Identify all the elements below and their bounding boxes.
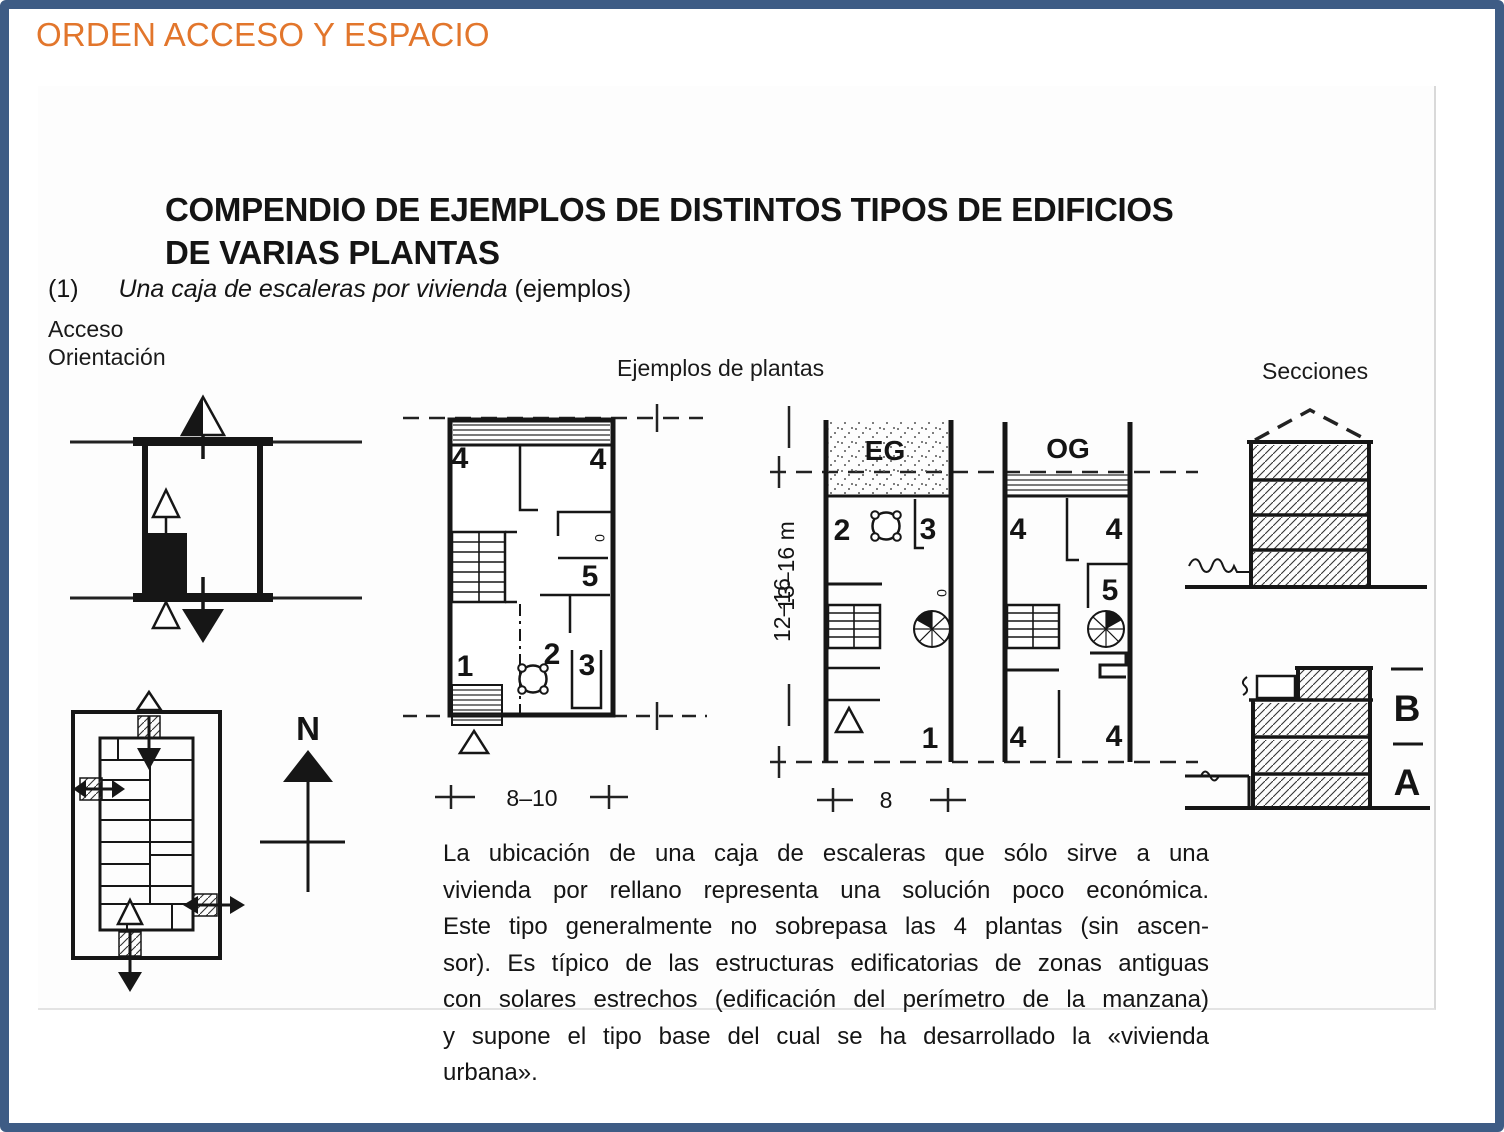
stair-core-block (145, 533, 187, 597)
explanatory-paragraph: La ubicación de una caja de escaleras qu… (443, 836, 1209, 1092)
label-orientacion: Orientación (48, 344, 166, 371)
paragraph-line: La ubicación de una caja de escaleras qu… (443, 836, 1209, 873)
staircase (1007, 605, 1059, 648)
eg-room-1: 1 (922, 722, 939, 755)
room-3: 3 (579, 649, 596, 682)
section-b-label: B (1394, 688, 1421, 729)
center-wall (1067, 498, 1079, 560)
roof-dashed (1255, 410, 1367, 440)
width-dimension: 8–10 (506, 785, 557, 811)
item-suffix: (ejemplos) (515, 275, 632, 303)
spiral-stair-icon (1088, 611, 1124, 647)
access-arrow-down-icon (182, 577, 224, 643)
label-ejemplos-plantas: Ejemplos de plantas (617, 355, 824, 382)
room-2: 2 (544, 638, 561, 671)
heading-line-2: DE VARIAS PLANTAS (165, 231, 1173, 274)
room-divisions (100, 738, 193, 930)
balcony-band (453, 423, 610, 444)
north-arrow: N (255, 700, 355, 900)
eg-door-mark: 0 (934, 589, 950, 597)
room-4a: 4 (452, 442, 469, 475)
slide: ORDEN ACCESO Y ESPACIO COMPENDIO DE EJEM… (0, 0, 1504, 1132)
plan-eg: EG 2 3 0 (826, 420, 951, 762)
entry-triangle-icon (460, 731, 488, 753)
room-5: 5 (582, 560, 599, 593)
balcony-band (1007, 474, 1128, 496)
paragraph-line: sor). Es típico de las estructuras edifi… (443, 946, 1209, 983)
slide-title: ORDEN ACCESO Y ESPACIO (36, 16, 490, 54)
room-4b: 4 (590, 443, 607, 476)
room-1: 1 (457, 650, 474, 683)
eg-room-2: 2 (834, 514, 851, 547)
serpentine-wall (1090, 653, 1126, 677)
figure-heading: COMPENDIO DE EJEMPLOS DE DISTINTOS TIPOS… (165, 188, 1173, 274)
north-arrowhead-icon (283, 750, 333, 782)
og-room-4a: 4 (1010, 513, 1027, 546)
spiral-stair-icon (914, 611, 950, 647)
paragraph-line: urbana». (443, 1055, 1209, 1092)
eg-width-dimension: 8 (880, 787, 893, 813)
og-room-4b: 4 (1106, 513, 1123, 546)
heading-line-1: COMPENDIO DE EJEMPLOS DE DISTINTOS TIPOS… (165, 188, 1173, 231)
og-room-4d: 4 (1106, 720, 1123, 753)
north-label: N (296, 710, 320, 747)
entry-steps-band (452, 685, 502, 725)
label-acceso: Acceso (48, 316, 123, 343)
open-arrow-top-icon (137, 692, 161, 710)
access-orientation-diagram-1 (70, 385, 370, 665)
terrace-squiggle (1243, 677, 1247, 695)
item-line: (1) Una caja de escaleras por vivienda (… (48, 275, 631, 304)
eg-label: EG (865, 435, 905, 466)
inner-building (100, 738, 193, 930)
paragraph-line: con solares estrechos (edificación del p… (443, 982, 1209, 1019)
orientation-arrow-up-icon (182, 397, 224, 459)
og-label: OG (1046, 433, 1090, 464)
round-table-icon (871, 511, 901, 541)
label-secciones: Secciones (1262, 358, 1368, 385)
scanned-figure: COMPENDIO DE EJEMPLOS DE DISTINTOS TIPOS… (38, 86, 1436, 1010)
og-room-5: 5 (1102, 574, 1119, 607)
staircase (452, 532, 505, 602)
entry-triangle-icon (836, 708, 862, 732)
staircase (828, 605, 880, 648)
access-orientation-diagram-2 (72, 690, 272, 1010)
example-plan-middle: 4 4 5 1 2 3 0 13–16 m 8–10 (395, 398, 810, 823)
eg-room-3: 3 (920, 513, 937, 546)
section-pitched-roof (1185, 398, 1435, 613)
setback-terrace (1257, 676, 1295, 698)
item-title: Una caja de escaleras por vivienda (118, 275, 507, 303)
door-mark: 0 (592, 534, 608, 542)
section-flat-roof-setback: B A (1185, 645, 1440, 835)
example-plans-eg-og: EG 2 3 0 (770, 398, 1200, 818)
terrain-squiggle (1189, 559, 1251, 572)
eg-height-dimension: 12–16 (769, 578, 795, 642)
stair-up-arrow-icon (153, 490, 179, 533)
paragraph-line: Este tipo generalmente no sobrepasa las … (443, 909, 1209, 946)
og-room-4c: 4 (1010, 721, 1027, 754)
section-a-label: A (1394, 762, 1421, 803)
paragraph-line: y supone el tipo base del cual se ha des… (443, 1019, 1209, 1056)
paragraph-line: vivienda por rellano representa una solu… (443, 873, 1209, 910)
entry-triangle-icon (153, 602, 179, 628)
item-number: (1) (48, 275, 79, 303)
